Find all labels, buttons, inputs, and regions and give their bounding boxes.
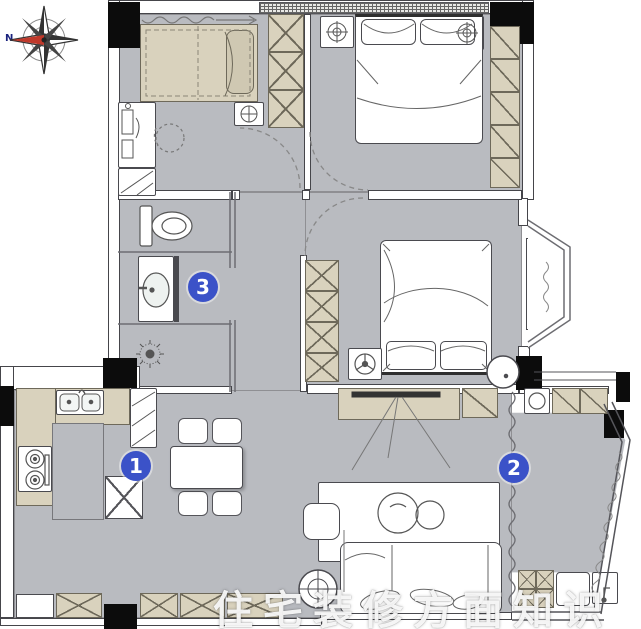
study-wardrobe-cell xyxy=(268,90,304,128)
marker-bathroom: 3 xyxy=(188,272,218,302)
north-label: N xyxy=(5,33,13,44)
master-right-wardrobe-cell xyxy=(490,92,520,125)
tv-cabinet xyxy=(338,388,460,420)
wall-right-bed2-top xyxy=(518,198,528,226)
study-nightstand xyxy=(234,102,264,126)
master-pillow-right xyxy=(420,19,475,45)
side-table xyxy=(303,503,340,540)
study-low-cabinet xyxy=(118,168,156,196)
floor-plan: 1 2 3 N 住宅装修方面知识 xyxy=(0,0,641,629)
master-right-wardrobe-cell xyxy=(490,26,520,59)
bed2-pillow-left xyxy=(386,341,436,370)
master-right-wardrobe-cell xyxy=(490,125,520,158)
marker-kitchen: 1 xyxy=(121,451,151,481)
dining-chair xyxy=(178,418,208,444)
dining-chair xyxy=(212,491,242,516)
side-cabinet xyxy=(462,388,498,418)
kitchen-tall-cabinet xyxy=(130,388,157,448)
fridge xyxy=(105,476,143,519)
master-pillow-left xyxy=(361,19,416,45)
dining-chair xyxy=(212,418,242,444)
master-nightstand-left xyxy=(320,16,354,48)
bed2-pillow-right xyxy=(440,341,487,370)
bed2-nightstand xyxy=(348,348,382,380)
master-wardrobe-cell xyxy=(268,14,304,52)
column-kitchen-top xyxy=(103,358,137,388)
dining-table xyxy=(170,446,243,489)
column-right-edge xyxy=(616,372,630,402)
study-bed-pillow xyxy=(226,30,254,94)
bottom-cabinet xyxy=(56,593,102,618)
kitchen-stove xyxy=(18,446,52,492)
column-bed2-corner xyxy=(516,356,542,390)
master-right-wardrobe-cell xyxy=(490,59,520,92)
entry-mat xyxy=(16,594,54,618)
bottom-cabinet xyxy=(140,593,178,618)
column-kitchen-left xyxy=(0,386,14,426)
dining-chair xyxy=(178,491,208,516)
bed2-wardrobe-cell xyxy=(305,353,339,382)
compass-icon xyxy=(10,6,78,74)
kitchen-island xyxy=(52,423,104,520)
master-right-wardrobe-cell xyxy=(490,158,520,188)
bathroom-vanity xyxy=(138,256,174,322)
wall-hall-nib-mid xyxy=(302,190,310,200)
bathroom-divider xyxy=(174,256,179,322)
study-desk-nook xyxy=(118,102,156,168)
balcony-cabinet xyxy=(552,388,580,414)
bed2-wardrobe-cell xyxy=(305,260,339,291)
column-bottom xyxy=(104,604,137,629)
window-top xyxy=(259,2,489,14)
bay-window-sill xyxy=(526,238,544,330)
column-balcony-top xyxy=(604,410,624,438)
bed2-wardrobe-cell xyxy=(305,291,339,322)
column-top-left xyxy=(108,2,140,48)
bed2-wardrobe-cell xyxy=(305,322,339,353)
kitchen-sink xyxy=(56,390,104,415)
master-wardrobe-cell xyxy=(268,52,304,90)
balcony-cabinet xyxy=(580,388,608,414)
wall-hall-nib-left xyxy=(232,190,240,200)
wall-study-master xyxy=(304,14,311,190)
wall-master-bed2 xyxy=(368,190,522,200)
watermark: 住宅装修方面知识 xyxy=(213,578,613,629)
balcony-sink-cabinet xyxy=(524,388,550,414)
marker-balcony: 2 xyxy=(499,453,529,483)
